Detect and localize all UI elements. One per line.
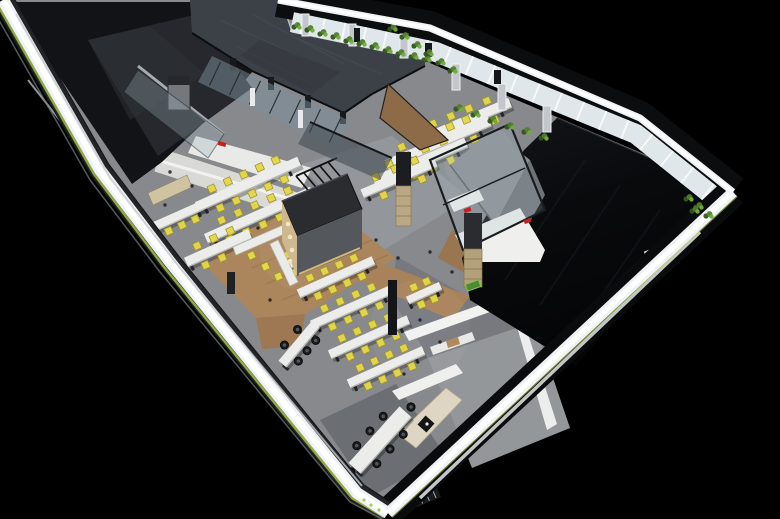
plants-row-upper xyxy=(388,49,392,53)
plants-east-corner xyxy=(709,214,713,218)
office-chair-seat xyxy=(305,349,308,352)
wall-column xyxy=(543,106,551,132)
office-chair-seat xyxy=(297,359,300,362)
office-chair-seat xyxy=(381,415,384,418)
plants-row-upper xyxy=(375,45,379,49)
scene-rendering xyxy=(0,0,780,519)
plants-nw-wall xyxy=(441,61,445,65)
floor-downlights xyxy=(268,298,271,301)
plants-row-upper xyxy=(362,42,366,46)
floor-downlights xyxy=(438,340,441,343)
grass-flecks xyxy=(377,508,380,511)
plants-nw-wall xyxy=(453,69,457,73)
plants-row-upper xyxy=(336,35,340,39)
plants-row-upper xyxy=(427,58,431,62)
wall-column xyxy=(498,84,506,110)
black-post xyxy=(388,280,397,335)
office-chair-seat xyxy=(355,444,358,447)
office-chair-seat xyxy=(368,429,371,432)
plants-row-mid xyxy=(476,113,480,117)
office-chair-seat xyxy=(314,339,317,342)
grass-flecks xyxy=(362,498,365,501)
plants-nw-wall xyxy=(417,44,421,48)
plants-row-mid xyxy=(527,130,531,134)
plants-row-upper xyxy=(349,39,353,43)
office-chair-seat xyxy=(375,462,378,465)
floor-downlights xyxy=(418,318,421,321)
plants-nw-wall xyxy=(405,35,409,39)
plants-row-upper xyxy=(414,55,418,59)
plants-nw-wall xyxy=(429,52,433,56)
plants-nw-wall xyxy=(393,27,397,31)
white-post xyxy=(250,88,255,106)
wall-column xyxy=(302,14,309,36)
kiosk-menu-lights xyxy=(288,259,293,264)
plants-east-corner xyxy=(689,197,693,201)
floor-downlights xyxy=(396,256,399,259)
floor-downlights xyxy=(428,250,431,253)
plants-row-mid xyxy=(510,125,514,129)
plants-east-corner xyxy=(699,205,703,209)
office-chair-seat xyxy=(283,343,286,346)
rendering-image xyxy=(0,0,780,519)
plants-east-corner xyxy=(695,209,699,213)
floor-downlights xyxy=(256,226,259,229)
plants-row-mid xyxy=(544,136,548,140)
plants-row-upper xyxy=(401,52,405,56)
black-post xyxy=(227,272,235,294)
column-cap xyxy=(396,152,411,186)
plants-row-mid xyxy=(493,119,497,123)
white-post xyxy=(298,110,303,128)
floor-downlights xyxy=(450,270,453,273)
roof-column-stub xyxy=(494,70,501,84)
chimney-top xyxy=(168,76,190,85)
floor-downlights xyxy=(374,238,377,241)
plants-row-upper xyxy=(310,28,314,32)
floor-downlights xyxy=(168,170,171,173)
grass-flecks xyxy=(369,503,372,506)
kiosk-menu-lights xyxy=(286,222,291,227)
office-chair-seat xyxy=(296,328,299,331)
office-chair-seat xyxy=(388,447,391,450)
floor-downlights xyxy=(402,372,405,375)
column-cap xyxy=(464,213,482,249)
kiosk-menu-lights xyxy=(288,235,293,240)
plants-row-mid xyxy=(459,107,463,111)
floor-downlights xyxy=(163,203,166,206)
plants-row-upper xyxy=(297,25,301,29)
kiosk-menu-lights xyxy=(290,248,295,253)
roof-column-stub xyxy=(354,28,360,42)
floor-downlights xyxy=(190,184,193,187)
cooktop-dot xyxy=(425,422,428,425)
office-chair-seat xyxy=(409,405,412,408)
plants-row-upper xyxy=(323,32,327,36)
office-chair-seat xyxy=(402,433,405,436)
